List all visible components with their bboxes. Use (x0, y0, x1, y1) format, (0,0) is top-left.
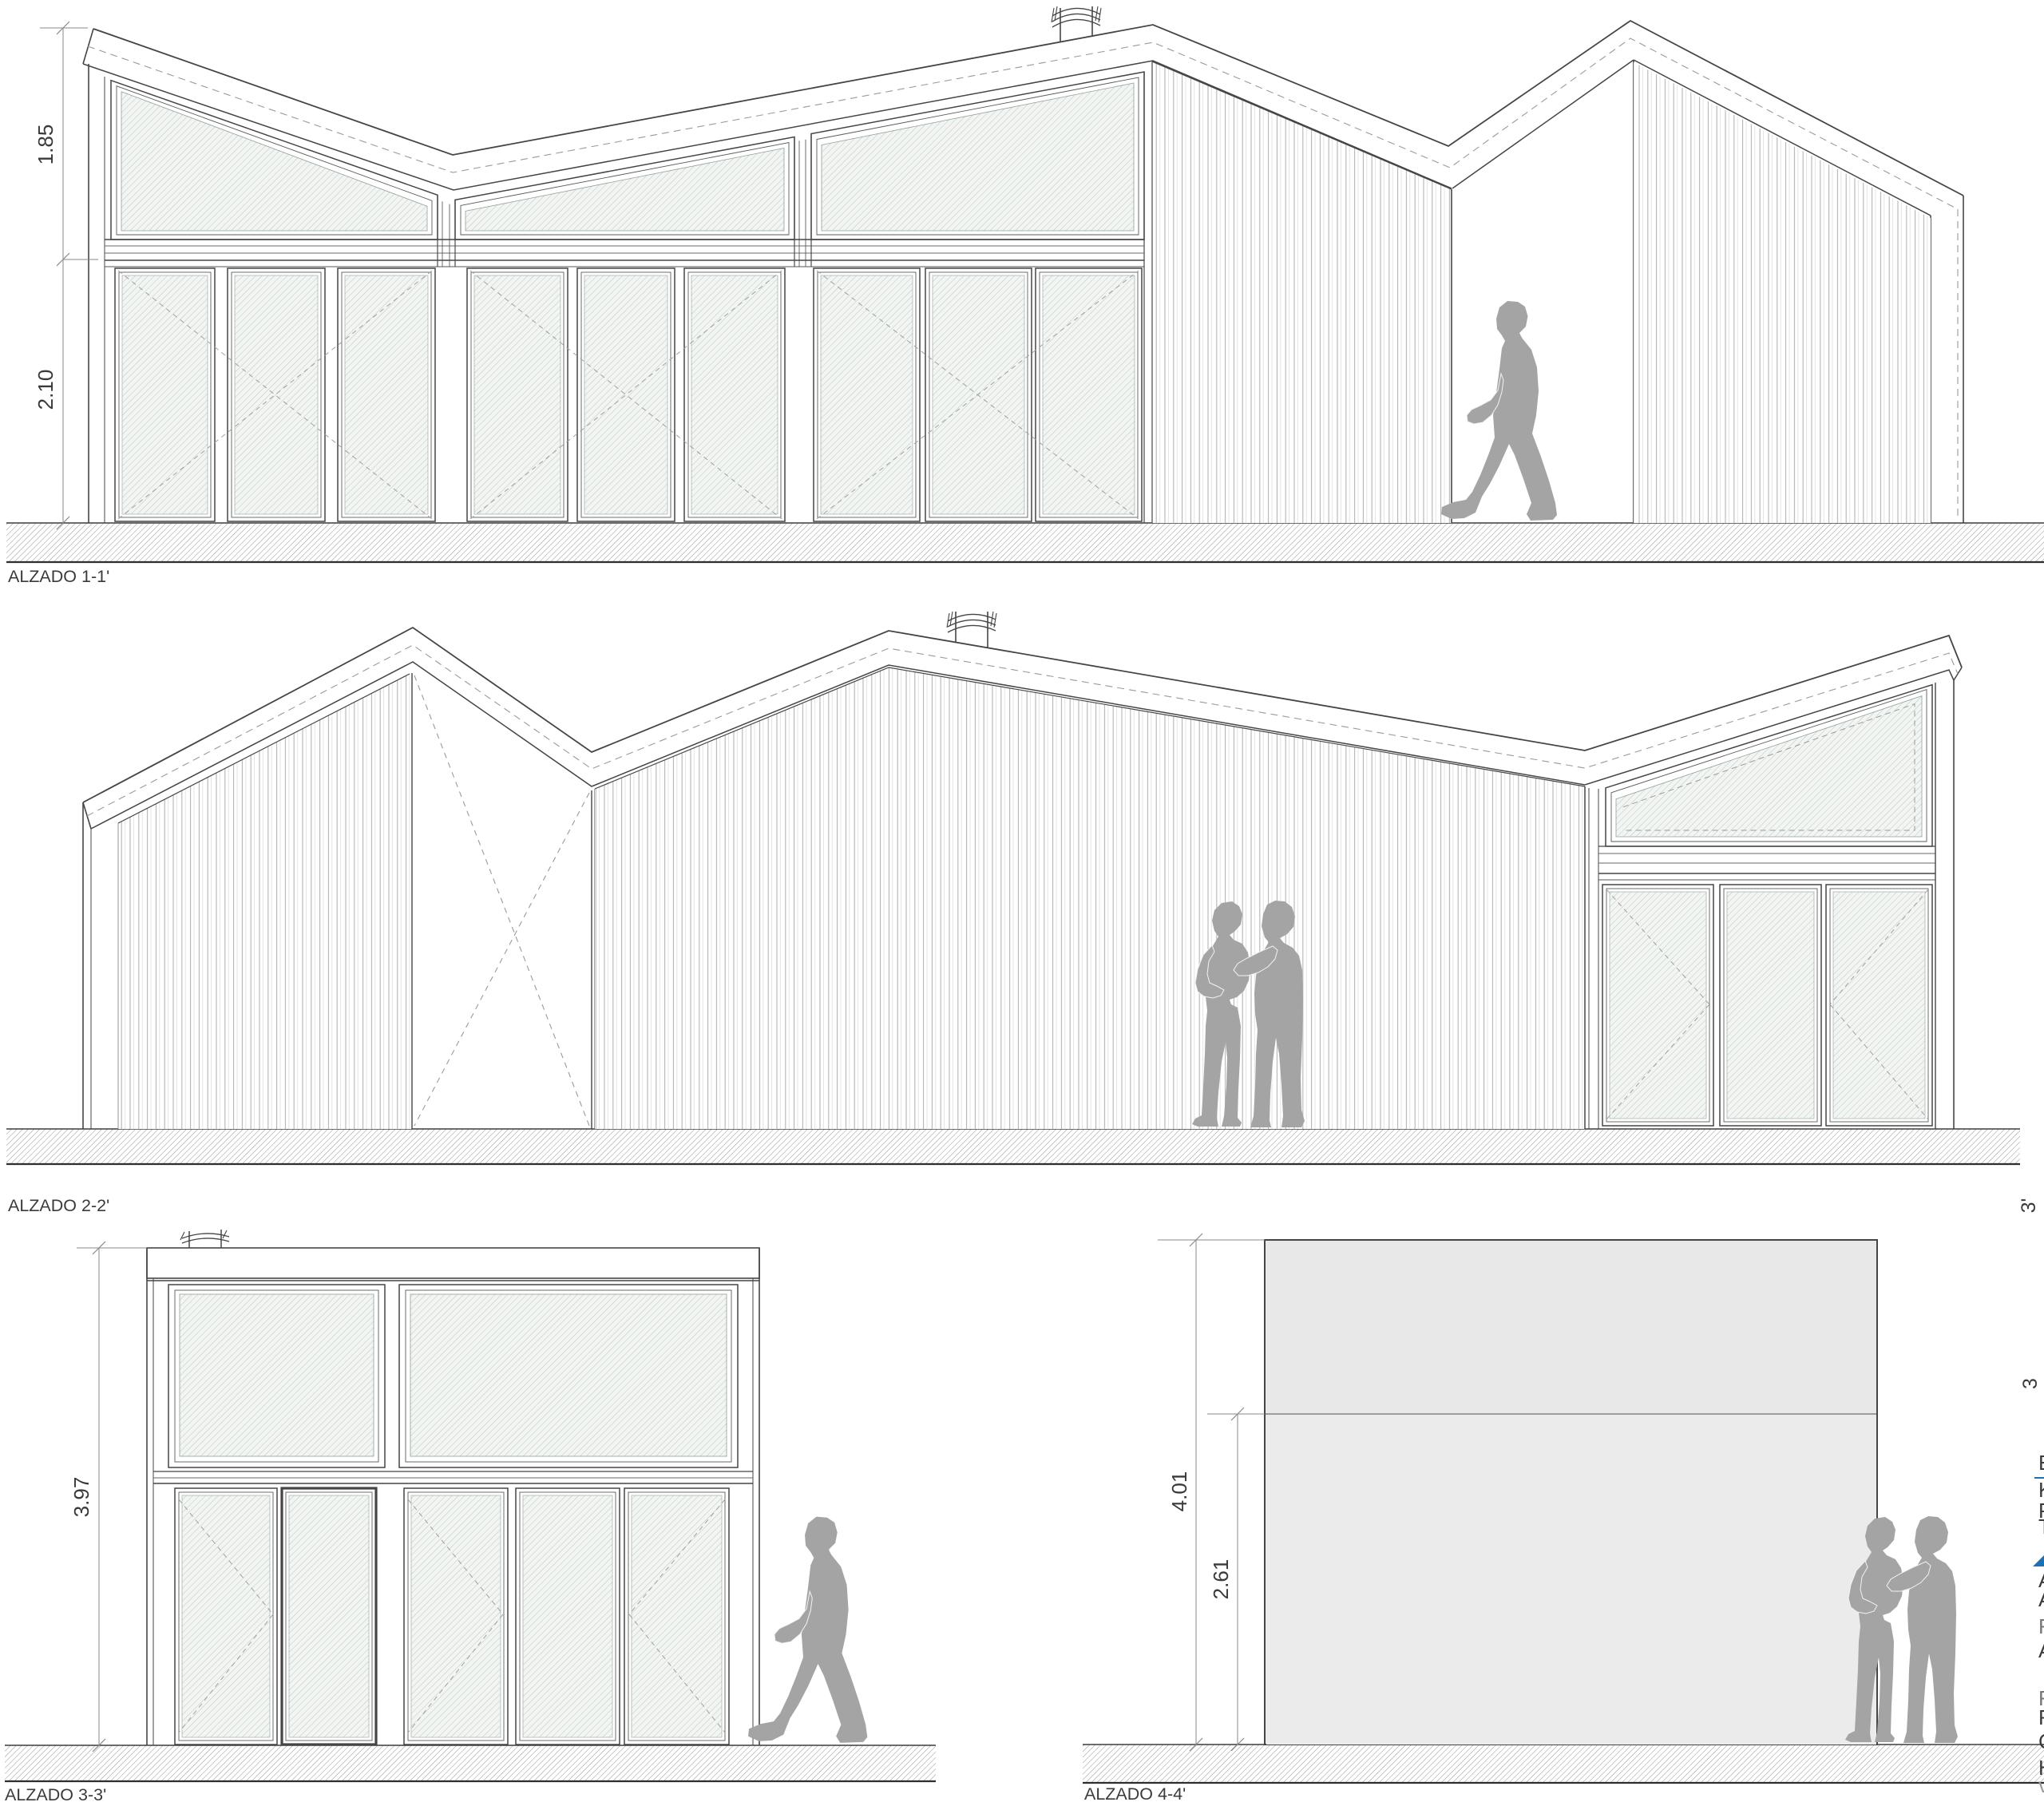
svg-text:ALZADO 3-3': ALZADO 3-3' (5, 1785, 106, 1802)
svg-text:T: T (2038, 1515, 2044, 1539)
svg-text:2.10: 2.10 (34, 370, 57, 410)
svg-text:v: v (2038, 1773, 2044, 1797)
svg-text:F: F (2038, 1614, 2044, 1638)
svg-text:C: C (2038, 1729, 2044, 1753)
svg-text:E: E (2038, 1451, 2044, 1475)
svg-text:ALZADO 4-4': ALZADO 4-4' (1084, 1784, 1186, 1802)
svg-text:A: A (2038, 1638, 2044, 1662)
svg-text:A: A (2038, 1587, 2044, 1611)
svg-text:3.97: 3.97 (69, 1477, 93, 1518)
svg-text:1.85: 1.85 (34, 125, 57, 165)
svg-text:4.01: 4.01 (1167, 1471, 1191, 1512)
svg-text:ALZADO 1-1': ALZADO 1-1' (8, 567, 109, 586)
svg-text:R: R (2038, 1705, 2044, 1729)
svg-text:3: 3 (2019, 1378, 2042, 1389)
svg-text:2.61: 2.61 (1209, 1559, 1233, 1600)
svg-text:ALZADO 2-2': ALZADO 2-2' (8, 1196, 109, 1215)
svg-text:3': 3' (2018, 1198, 2040, 1214)
